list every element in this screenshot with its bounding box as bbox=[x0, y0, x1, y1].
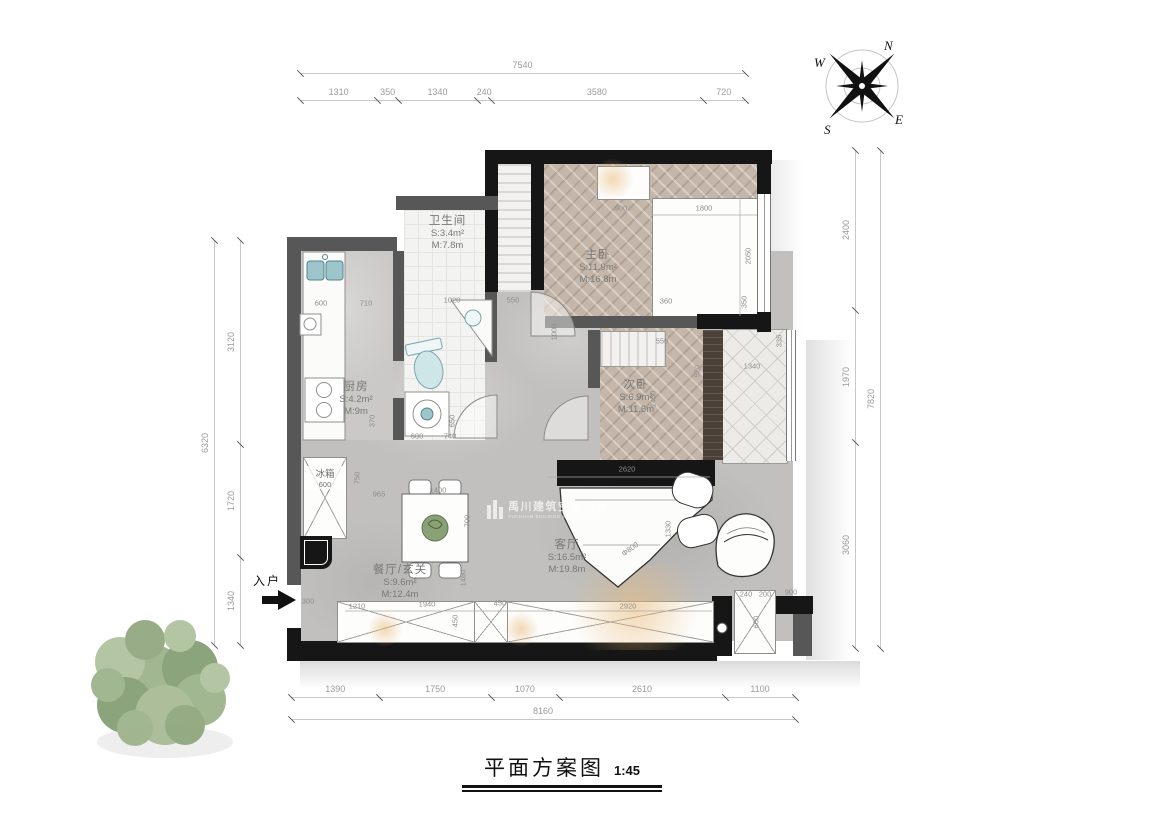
kitchen-sink-basin-2 bbox=[326, 261, 343, 280]
kitchen-sink-basin-1 bbox=[307, 261, 324, 280]
compass-s: S bbox=[824, 122, 831, 138]
bathroom-door-arc bbox=[454, 395, 497, 438]
room-label-bathroom: 卫生间 S:3.4m² M:7.8m bbox=[405, 214, 490, 252]
title-underline-thin bbox=[462, 790, 662, 792]
watermark-cn: 禹川建筑空间设计 bbox=[508, 498, 608, 514]
compass-n: N bbox=[884, 38, 893, 54]
bath-sink bbox=[465, 310, 481, 326]
title-scale: 1:45 bbox=[614, 763, 640, 778]
wall-fixture-dot bbox=[717, 623, 727, 633]
compass-e: E bbox=[895, 112, 903, 128]
floor-plan-canvas: 冰箱 600 bbox=[0, 0, 1150, 813]
tree-graphic bbox=[91, 620, 233, 758]
compass-w: W bbox=[814, 55, 825, 71]
title-underline-thick bbox=[462, 785, 662, 788]
armchair bbox=[716, 514, 774, 577]
compass-icon bbox=[797, 21, 927, 151]
room-label-kitchen: 厨房 S:4.2m² M:9m bbox=[318, 380, 394, 418]
title-block: 平面方案图 1:45 bbox=[462, 752, 662, 792]
room-label-dining: 餐厅/玄关 S:9.6m² M:12.4m bbox=[352, 563, 448, 601]
room-label-living: 客厅 S:16.5m² M:19.8m bbox=[527, 538, 607, 576]
toilet bbox=[405, 338, 450, 392]
second-door-arc bbox=[544, 396, 588, 440]
fixtures-layer bbox=[0, 0, 1150, 813]
watermark: 禹川建筑空间设计 YUCHUAN BUILDING SPACE DESIGN bbox=[487, 497, 608, 519]
room-label-master: 主卧 S:11.9m² M:16.8m bbox=[558, 248, 638, 286]
master-door-arc bbox=[531, 292, 575, 336]
entrance-label: 入户 bbox=[253, 572, 281, 589]
entrance-arrow-icon bbox=[262, 590, 296, 610]
watermark-en: YUCHUAN BUILDING SPACE DESIGN bbox=[508, 514, 608, 519]
room-label-second: 次卧 S:6.9m² M:11.6m bbox=[596, 378, 676, 416]
watermark-logo-icon bbox=[487, 497, 504, 519]
kitchen-hob-box bbox=[300, 314, 321, 335]
page-title: 平面方案图 bbox=[484, 752, 604, 782]
bath-vanity bbox=[451, 300, 492, 356]
